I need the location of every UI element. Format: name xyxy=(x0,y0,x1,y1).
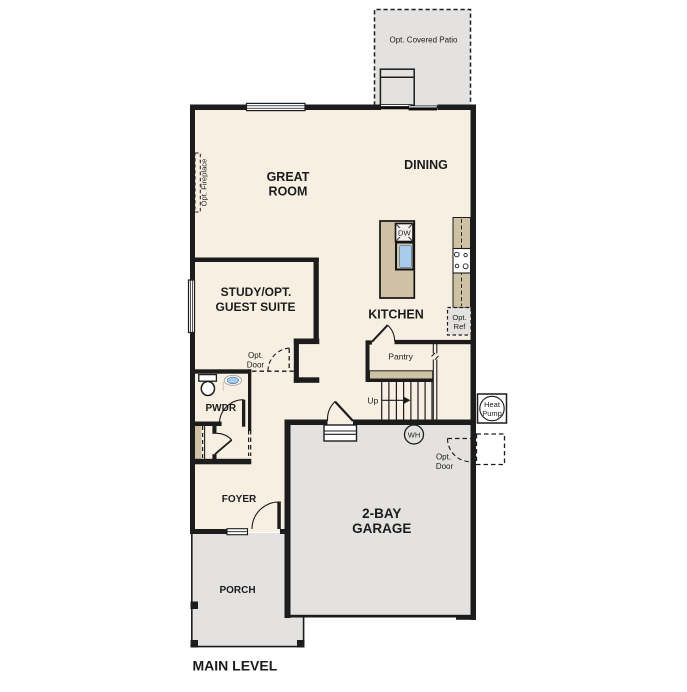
svg-text:GREAT: GREAT xyxy=(267,170,310,184)
svg-text:Opt.: Opt. xyxy=(452,313,466,322)
svg-text:FOYER: FOYER xyxy=(222,494,257,505)
svg-text:Door: Door xyxy=(436,462,454,471)
svg-text:GARAGE: GARAGE xyxy=(352,521,411,536)
svg-text:KITCHEN: KITCHEN xyxy=(368,307,424,321)
svg-text:PWDR: PWDR xyxy=(206,403,237,414)
svg-text:Opt. Fireplace: Opt. Fireplace xyxy=(200,159,209,207)
svg-text:Pantry: Pantry xyxy=(388,352,413,362)
svg-text:WH: WH xyxy=(408,430,421,439)
svg-text:ROOM: ROOM xyxy=(269,184,308,198)
svg-text:Opt.: Opt. xyxy=(248,351,263,360)
svg-text:Heat: Heat xyxy=(484,400,501,409)
svg-text:STUDY/OPT.: STUDY/OPT. xyxy=(221,285,292,299)
svg-text:Door: Door xyxy=(247,360,265,369)
svg-text:MAIN LEVEL: MAIN LEVEL xyxy=(193,658,278,674)
svg-text:DINING: DINING xyxy=(404,158,448,172)
svg-text:Opt.: Opt. xyxy=(436,452,451,461)
svg-text:Up: Up xyxy=(367,396,378,406)
svg-text:DW: DW xyxy=(398,228,411,237)
svg-text:2-BAY: 2-BAY xyxy=(362,506,401,521)
svg-text:Ref: Ref xyxy=(454,322,467,331)
svg-text:PORCH: PORCH xyxy=(219,585,255,596)
svg-text:Opt. Covered Patio: Opt. Covered Patio xyxy=(389,36,458,45)
svg-text:Pump: Pump xyxy=(482,409,502,418)
svg-text:GUEST SUITE: GUEST SUITE xyxy=(215,300,295,314)
